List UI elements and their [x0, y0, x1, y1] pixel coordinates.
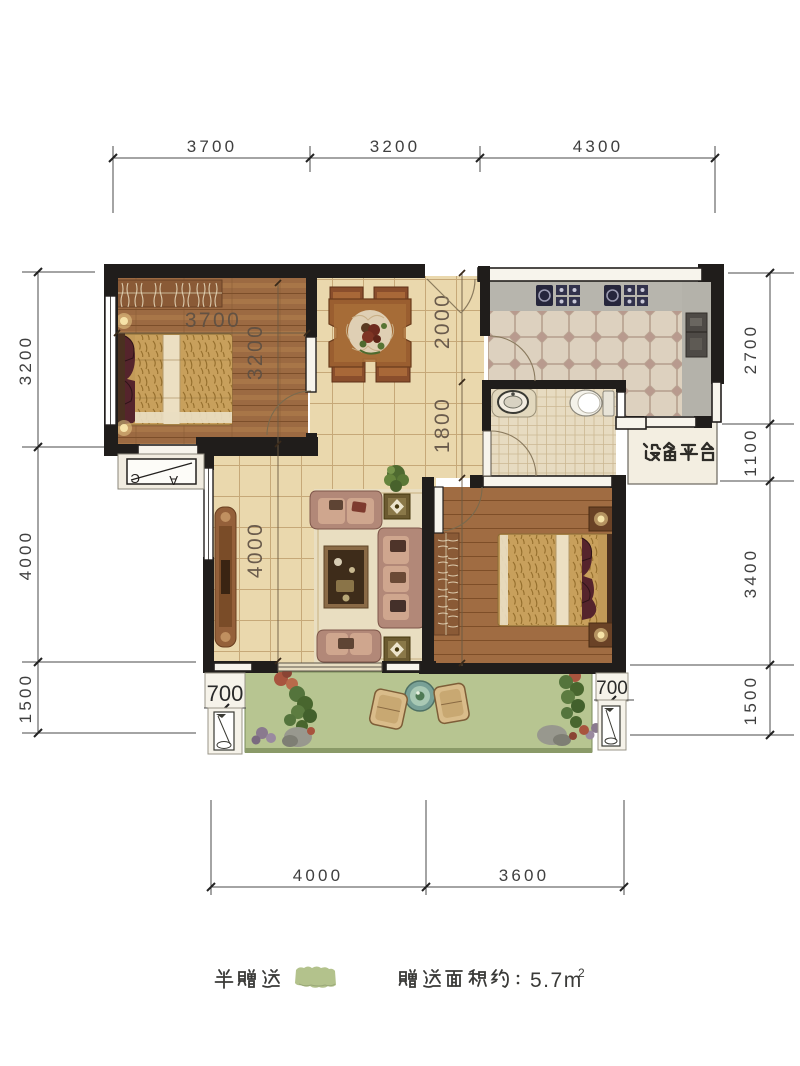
svg-text:700: 700: [207, 681, 244, 706]
svg-text:3700: 3700: [187, 137, 238, 156]
svg-text:3200: 3200: [370, 137, 421, 156]
svg-text:3400: 3400: [741, 548, 760, 599]
svg-text:1800: 1800: [431, 397, 454, 453]
svg-text:2700: 2700: [741, 324, 760, 375]
svg-text:3200: 3200: [16, 335, 35, 386]
svg-text:3700: 3700: [185, 309, 241, 332]
svg-text:4000: 4000: [244, 522, 267, 578]
svg-text:3200: 3200: [244, 324, 267, 380]
svg-text:1500: 1500: [16, 673, 35, 724]
svg-text:3600: 3600: [499, 866, 550, 885]
svg-text:C: C: [131, 471, 140, 486]
svg-text:A: A: [169, 473, 178, 488]
svg-text:5.7m: 5.7m: [530, 969, 583, 992]
svg-text:2000: 2000: [431, 293, 454, 349]
svg-text:4000: 4000: [293, 866, 344, 885]
svg-text:4300: 4300: [573, 137, 624, 156]
svg-text:700: 700: [596, 678, 628, 699]
svg-text:4000: 4000: [16, 530, 35, 581]
svg-text:1100: 1100: [741, 427, 760, 476]
svg-text:2: 2: [578, 966, 585, 980]
svg-text:1500: 1500: [741, 675, 760, 726]
